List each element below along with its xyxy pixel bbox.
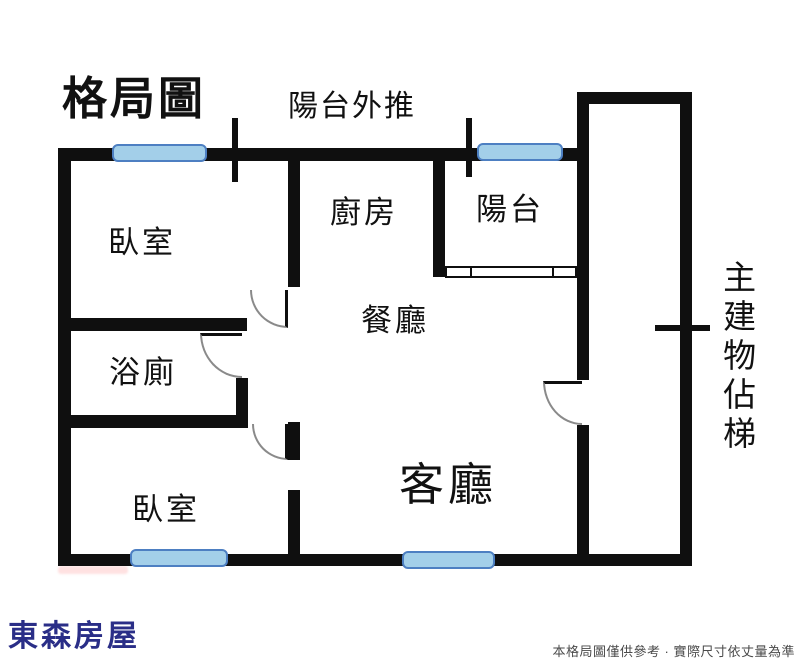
wall-kitchen-right <box>433 148 445 277</box>
wall-shaft-left-upper <box>577 92 589 380</box>
page-title: 格局圖 <box>62 76 206 123</box>
wall-bathroom-stub <box>236 378 248 422</box>
wall-shaft-top <box>577 92 692 104</box>
room-label-bedroom-bottom: 臥室 <box>132 494 200 527</box>
room-label-dining: 餐廳 <box>361 305 429 338</box>
room-label-balcony: 陽台 <box>476 194 544 227</box>
door-arc-entry <box>543 381 582 425</box>
sliding-door-divider <box>552 268 554 276</box>
room-label-living: 客廳 <box>399 462 497 509</box>
window-balcony <box>477 143 563 161</box>
annotation-stair-column: 主建物佔梯 <box>718 260 753 470</box>
wall-bedroom1-bathroom <box>58 318 247 331</box>
wall-center-lower <box>288 490 300 566</box>
window-bedroom-bottom <box>130 549 228 567</box>
wall-shaft-left-lower <box>577 425 589 566</box>
sliding-door-divider <box>470 268 472 276</box>
annotation-balcony-pushed-out: 陽台外推 <box>288 91 416 123</box>
disclaimer-text: 本格局圖僅供參考 · 實際尺寸依丈量為準 <box>545 645 795 659</box>
room-label-bathroom: 浴廁 <box>109 357 177 390</box>
wall-left <box>58 148 71 566</box>
tick-top-right <box>466 118 472 177</box>
wall-center-mid <box>288 422 300 460</box>
agency-logo-text: 東森房屋 <box>8 621 140 653</box>
room-label-kitchen: 廚房 <box>330 197 398 230</box>
floor-plan: 格局圖 陽台外推 臥室 廚房 陽台 餐廳 浴廁 臥室 客廳 主建物佔梯 東森房屋… <box>0 0 800 665</box>
door-arc-bedroom-bottom <box>252 424 288 460</box>
door-arc-hallway <box>250 290 288 328</box>
window-living <box>402 551 495 569</box>
window-bedroom-top <box>112 144 207 162</box>
tick-top-left <box>232 118 238 182</box>
door-arc-bathroom <box>200 333 242 378</box>
sliding-door-balcony <box>445 266 577 278</box>
watermark-artifact <box>58 566 128 574</box>
wall-center-upper <box>288 148 300 287</box>
tick-right-wall <box>655 325 710 331</box>
wall-bathroom-bottom <box>58 415 248 428</box>
room-label-bedroom-top: 臥室 <box>108 227 176 260</box>
